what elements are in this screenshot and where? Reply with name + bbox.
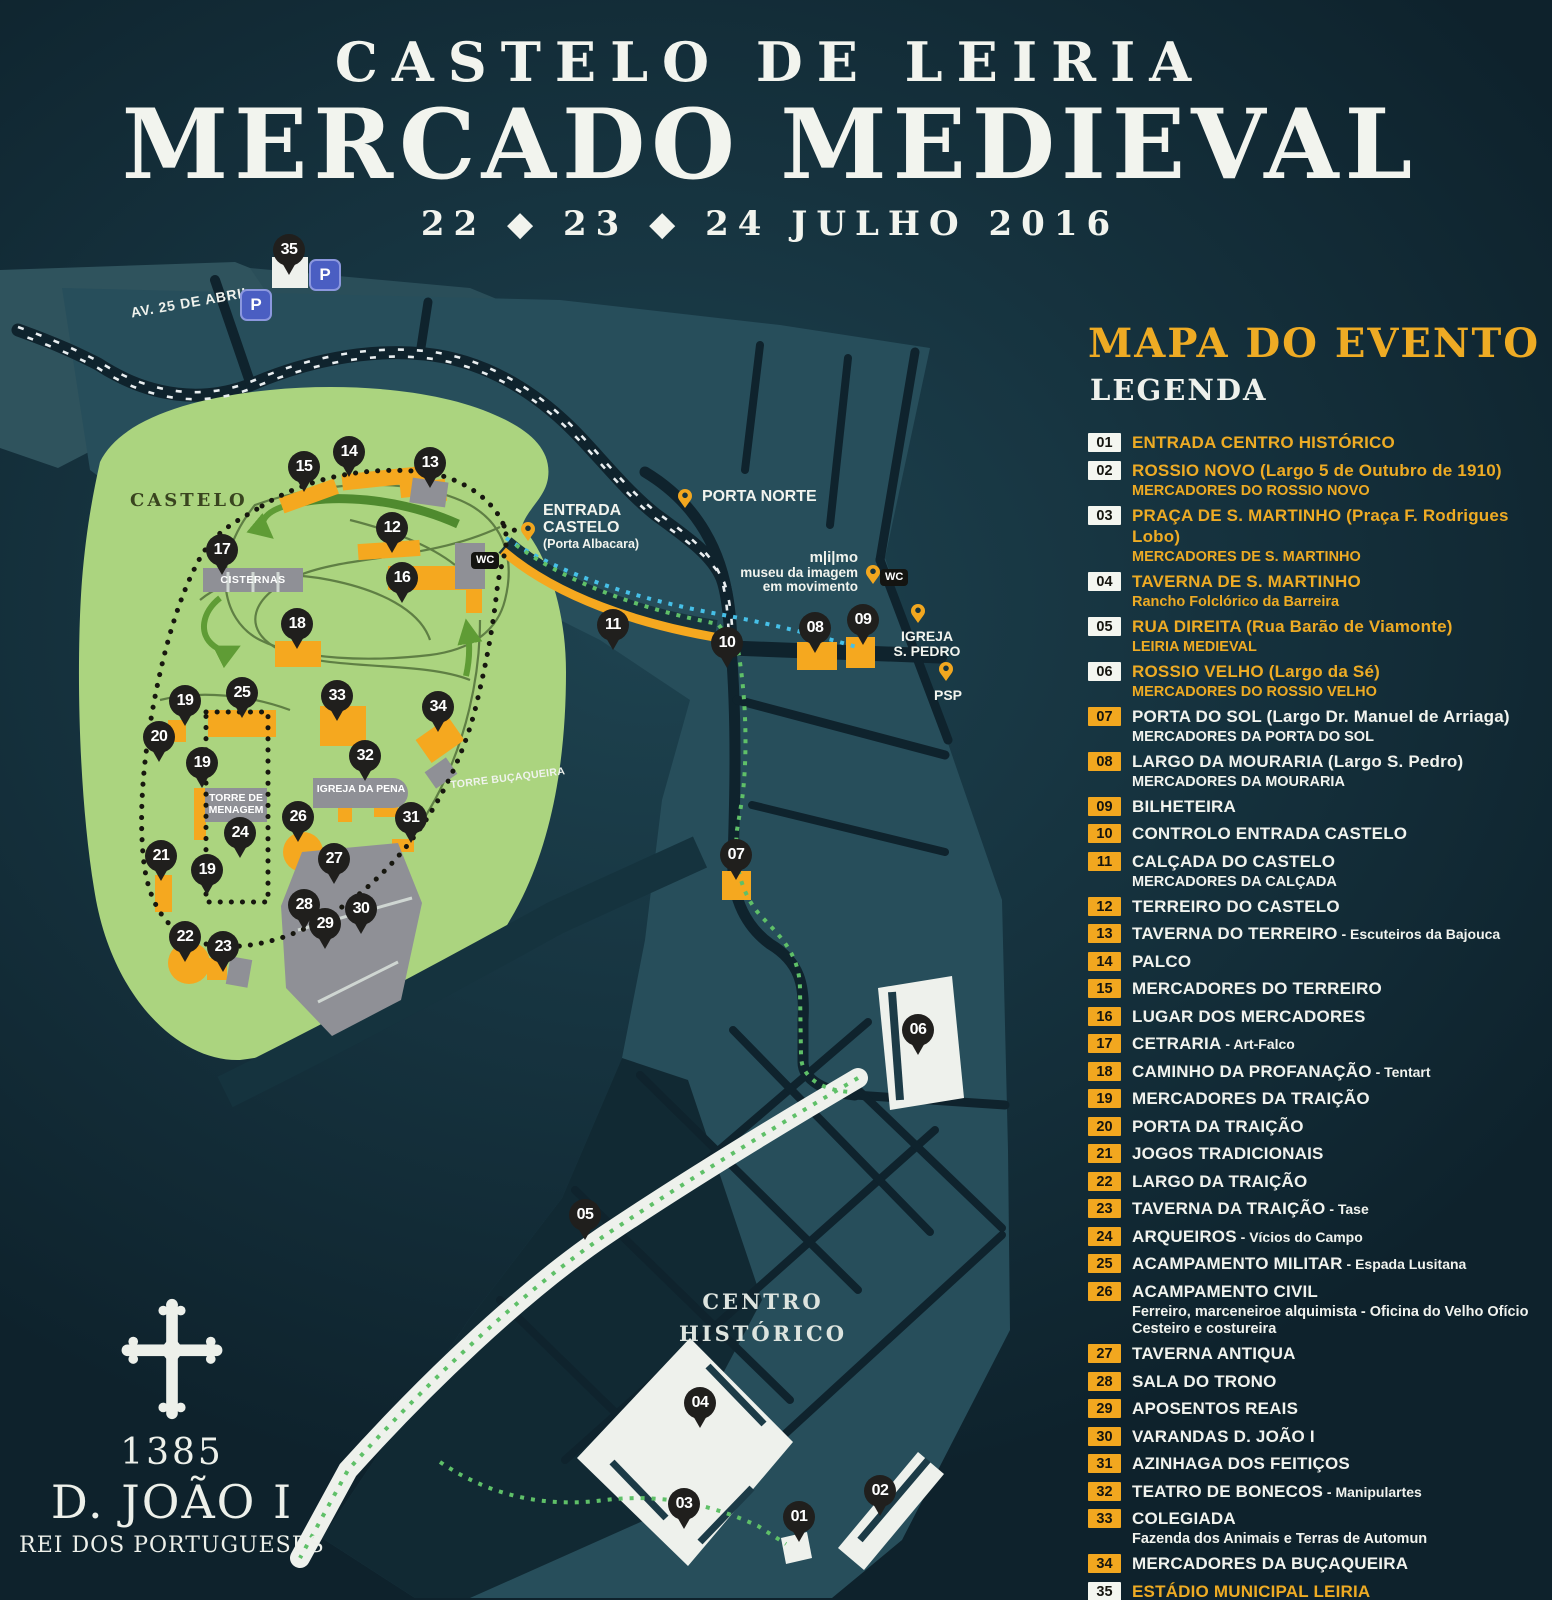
map-marker-tail [290, 828, 306, 842]
legend-item-subtitle: MERCADORES DE S. MARTINHO [1132, 549, 1546, 566]
legend-item-number: 15 [1088, 979, 1121, 998]
legend-item-17[interactable]: 17CETRARIA - Art-Falco [1088, 1034, 1546, 1055]
map-marker-25[interactable]: 25 [226, 677, 258, 718]
legend-item-subtitle: Fazenda dos Animais e Terras de Automun [1132, 1531, 1427, 1548]
legend-item-number: 20 [1088, 1117, 1121, 1136]
map-marker-16[interactable]: 16 [386, 562, 418, 603]
map-marker-tail [384, 539, 400, 553]
legend-item-text: ACAMPAMENTO CIVILFerreiro, marceneiroe a… [1132, 1282, 1528, 1338]
legend-item-title: APOSENTOS REAIS [1132, 1399, 1298, 1418]
legend-item-suffix: - Espada Lusitana [1343, 1256, 1467, 1272]
map-marker-30[interactable]: 30 [345, 893, 377, 934]
legend-item-title: ACAMPAMENTO CIVIL [1132, 1282, 1318, 1301]
legend-item-text: ACAMPAMENTO MILITAR - Espada Lusitana [1132, 1254, 1466, 1275]
legend-item-subtitle: MERCADORES DA PORTA DO SOL [1132, 729, 1510, 746]
legend-item-number: 33 [1088, 1509, 1121, 1528]
legend-item-title: MERCADORES DA TRAIÇÃO [1132, 1089, 1370, 1108]
legend-item-20[interactable]: 20PORTA DA TRAIÇÃO [1088, 1117, 1546, 1138]
entrada-castelo-pin[interactable] [521, 522, 535, 541]
crest-block: 1385 D. JOÃO I REI DOS PORTUGUESES [12, 1296, 332, 1558]
legend-item-25[interactable]: 25ACAMPAMENTO MILITAR - Espada Lusitana [1088, 1254, 1546, 1275]
map-marker-tail [151, 748, 167, 762]
map-marker-tail [341, 463, 357, 477]
legend-item-15[interactable]: 15MERCADORES DO TERREIRO [1088, 979, 1546, 1000]
legend-item-text: TAVERNA DA TRAIÇÃO - Tase [1132, 1199, 1369, 1220]
map-marker-18[interactable]: 18 [281, 608, 313, 649]
legend-item-number: 19 [1088, 1089, 1121, 1108]
map-marker-11[interactable]: 11 [597, 609, 629, 650]
legend-item-text: PORTA DA TRAIÇÃO [1132, 1117, 1304, 1138]
map-marker-tail [317, 935, 333, 949]
map-marker-tail [329, 707, 345, 721]
legend-item-number: 09 [1088, 797, 1121, 816]
legend-item-05[interactable]: 05RUA DIREITA (Rua Barão de Viamonte)LEI… [1088, 617, 1546, 656]
legend-item-text: PORTA DO SOL (Largo Dr. Manuel de Arriag… [1132, 707, 1510, 746]
map-marker-31[interactable]: 31 [395, 802, 427, 843]
map-marker-tail [281, 261, 297, 275]
parking-icon[interactable]: P [240, 289, 272, 321]
legend-item-number: 08 [1088, 752, 1121, 771]
map-marker-01[interactable]: 01 [783, 1501, 815, 1542]
legend-item-09[interactable]: 09BILHETEIRA [1088, 797, 1546, 818]
legend-item-title: ENTRADA CENTRO HISTÓRICO [1132, 433, 1395, 452]
map-marker-15[interactable]: 15 [288, 451, 320, 492]
legend-item-text: APOSENTOS REAIS [1132, 1399, 1298, 1420]
crest-year: 1385 [12, 1432, 332, 1473]
map-marker-13[interactable]: 13 [414, 447, 446, 488]
legend-item-number: 18 [1088, 1062, 1121, 1081]
legend-item-03[interactable]: 03PRAÇA DE S. MARTINHO (Praça F. Rodrigu… [1088, 506, 1546, 566]
legend-item-12[interactable]: 12TERREIRO DO CASTELO [1088, 897, 1546, 918]
poi-pin-tail [913, 616, 923, 623]
legend-item-number: 32 [1088, 1482, 1121, 1501]
legend-item-text: ROSSIO NOVO (Largo 5 de Outubro de 1910)… [1132, 461, 1502, 500]
legend-item-31[interactable]: 31AZINHAGA DOS FEITIÇOS [1088, 1454, 1546, 1475]
legend-item-11[interactable]: 11CALÇADA DO CASTELOMERCADORES DA CALÇAD… [1088, 852, 1546, 891]
poi-pin-tail [680, 501, 690, 508]
legend-item-suffix: - Tentart [1372, 1064, 1431, 1080]
legend-item-02[interactable]: 02ROSSIO NOVO (Largo 5 de Outubro de 191… [1088, 461, 1546, 500]
map-marker-tail [728, 866, 744, 880]
legend-item-text: TERREIRO DO CASTELO [1132, 897, 1340, 918]
legend-item-number: 34 [1088, 1554, 1121, 1573]
legend-item-text: CALÇADA DO CASTELOMERCADORES DA CALÇADA [1132, 852, 1337, 891]
legend-item-title: ROSSIO VELHO (Largo da Sé) [1132, 662, 1380, 681]
legend-item-number: 14 [1088, 952, 1121, 971]
legend-item-number: 25 [1088, 1254, 1121, 1273]
legend-item-subtitle: Ferreiro, marceneiroe alquimista - Ofici… [1132, 1304, 1528, 1321]
legend-item-number: 26 [1088, 1282, 1121, 1301]
map-marker-20[interactable]: 20 [143, 721, 175, 762]
map-marker-35[interactable]: 35 [273, 234, 305, 275]
legend-item-number: 06 [1088, 662, 1121, 681]
legend-item-title: CONTROLO ENTRADA CASTELO [1132, 824, 1407, 843]
legend-item-number: 28 [1088, 1372, 1121, 1391]
legend-item-text: CAMINHO DA PROFANAÇÃO - Tentart [1132, 1062, 1431, 1083]
map-marker-14[interactable]: 14 [333, 436, 365, 477]
map-marker-tail [692, 1414, 708, 1428]
legend-item-29[interactable]: 29APOSENTOS REAIS [1088, 1399, 1546, 1420]
legend-heading: MAPA DO EVENTO [1088, 320, 1546, 367]
legend-item-number: 29 [1088, 1399, 1121, 1418]
legend-item-number: 10 [1088, 824, 1121, 843]
map-marker-08[interactable]: 08 [799, 612, 831, 653]
legend-item-text: LUGAR DOS MERCADORES [1132, 1007, 1366, 1028]
legend-item-35[interactable]: 35ESTÁDIO MUNICIPAL LEIRIA [1088, 1582, 1546, 1600]
legend-item-subtitle: LEIRIA MEDIEVAL [1132, 639, 1453, 656]
map-marker-tail [177, 948, 193, 962]
map-marker-tail [855, 631, 871, 645]
legend-item-04[interactable]: 04TAVERNA DE S. MARTINHORancho Folclóric… [1088, 572, 1546, 611]
poi-pin-tail [868, 577, 878, 584]
map-marker-tail [177, 712, 193, 726]
legend-item-title: PORTA DA TRAIÇÃO [1132, 1117, 1304, 1136]
legend-item-30[interactable]: 30VARANDAS D. JOÃO I [1088, 1427, 1546, 1448]
map-marker-tail [872, 1502, 888, 1516]
map-marker-10[interactable]: 10 [711, 627, 743, 668]
crest-king-title: REI DOS PORTUGUESES [12, 1533, 332, 1558]
legend-item-22[interactable]: 22LARGO DA TRAIÇÃO [1088, 1172, 1546, 1193]
map-marker-07[interactable]: 07 [720, 839, 752, 880]
psp-pin[interactable] [939, 662, 953, 681]
legend-item-number: 30 [1088, 1427, 1121, 1446]
map-marker-24[interactable]: 24 [224, 817, 256, 858]
legend-item-title: TEATRO DE BONECOS [1132, 1482, 1323, 1501]
map-marker-tail [153, 867, 169, 881]
legend-item-suffix: - Tase [1325, 1201, 1368, 1217]
legend-item-title: TAVERNA DE S. MARTINHO [1132, 572, 1361, 591]
legend-item-number: 01 [1088, 433, 1121, 452]
legend-item-text: SALA DO TRONO [1132, 1372, 1277, 1393]
map-marker-tail [430, 718, 446, 732]
map-marker-27[interactable]: 27 [318, 843, 350, 884]
map-marker-tail [214, 561, 230, 575]
legend-item-text: ESTÁDIO MUNICIPAL LEIRIA [1132, 1582, 1370, 1600]
map-marker-02[interactable]: 02 [864, 1475, 896, 1516]
legend-item-title: PRAÇA DE S. MARTINHO (Praça F. Rodrigues… [1132, 506, 1509, 546]
legend-item-number: 35 [1088, 1582, 1121, 1600]
legend-item-text: TEATRO DE BONECOS - Manipulartes [1132, 1482, 1422, 1503]
legend-item-text: ARQUEIROS - Vícios do Campo [1132, 1227, 1363, 1248]
map-marker-tail [605, 636, 621, 650]
legend-item-24[interactable]: 24ARQUEIROS - Vícios do Campo [1088, 1227, 1546, 1248]
map-marker-33[interactable]: 33 [321, 680, 353, 721]
legend-item-07[interactable]: 07PORTA DO SOL (Largo Dr. Manuel de Arri… [1088, 707, 1546, 746]
map-marker-tail [234, 704, 250, 718]
legend-item-01[interactable]: 01ENTRADA CENTRO HISTÓRICO [1088, 433, 1546, 454]
legend-item-subtitle: MERCADORES DO ROSSIO NOVO [1132, 483, 1502, 500]
legend-items: 01ENTRADA CENTRO HISTÓRICO02ROSSIO NOVO … [1088, 433, 1546, 1600]
legend-item-text: LARGO DA MOURARIA (Largo S. Pedro)MERCAD… [1132, 752, 1463, 791]
map-marker-32[interactable]: 32 [349, 740, 381, 781]
map-marker-tail [394, 589, 410, 603]
legend-item-13[interactable]: 13TAVERNA DO TERREIRO - Escuteiros da Ba… [1088, 924, 1546, 945]
legend-item-suffix: - Escuteiros da Bajouca [1338, 926, 1501, 942]
mimo-pin[interactable] [866, 565, 880, 584]
legend-item-text: TAVERNA DO TERREIRO - Escuteiros da Bajo… [1132, 924, 1500, 945]
legend-subheading: LEGENDA [1090, 373, 1546, 407]
legend-item-text: BILHETEIRA [1132, 797, 1236, 818]
legend-item-title: ARQUEIROS [1132, 1227, 1237, 1246]
map-marker-03[interactable]: 03 [668, 1488, 700, 1529]
legend-item-number: 23 [1088, 1199, 1121, 1218]
map-marker-tail [676, 1515, 692, 1529]
map-marker-tail [791, 1528, 807, 1542]
legend-item-title: TERREIRO DO CASTELO [1132, 897, 1340, 916]
map-marker-tail [357, 767, 373, 781]
legend-item-23[interactable]: 23TAVERNA DA TRAIÇÃO - Tase [1088, 1199, 1546, 1220]
legend-panel: MAPA DO EVENTO LEGENDA 01ENTRADA CENTRO … [1088, 320, 1546, 1600]
map-marker-tail [215, 958, 231, 972]
legend-item-title: ACAMPAMENTO MILITAR [1132, 1254, 1343, 1273]
legend-item-16[interactable]: 16LUGAR DOS MERCADORES [1088, 1007, 1546, 1028]
legend-item-number: 21 [1088, 1144, 1121, 1163]
map-marker-tail [199, 881, 215, 895]
legend-item-08[interactable]: 08LARGO DA MOURARIA (Largo S. Pedro)MERC… [1088, 752, 1546, 791]
legend-item-title: MERCADORES DA BUÇAQUEIRA [1132, 1554, 1408, 1573]
legend-item-title: RUA DIREITA (Rua Barão de Viamonte) [1132, 617, 1453, 636]
legend-item-number: 02 [1088, 461, 1121, 480]
legend-item-title: CAMINHO DA PROFANAÇÃO [1132, 1062, 1372, 1081]
legend-item-10[interactable]: 10CONTROLO ENTRADA CASTELO [1088, 824, 1546, 845]
legend-item-18[interactable]: 18CAMINHO DA PROFANAÇÃO - Tentart [1088, 1062, 1546, 1083]
legend-item-32[interactable]: 32TEATRO DE BONECOS - Manipulartes [1088, 1482, 1546, 1503]
legend-item-text: RUA DIREITA (Rua Barão de Viamonte)LEIRI… [1132, 617, 1453, 656]
map-marker-22[interactable]: 22 [169, 921, 201, 962]
legend-item-subtitle: MERCADORES DA CALÇADA [1132, 874, 1337, 891]
legend-item-27[interactable]: 27TAVERNA ANTIQUA [1088, 1344, 1546, 1365]
parking-icon[interactable]: P [309, 259, 341, 291]
poi-pin-tail [941, 674, 951, 681]
legend-item-text: MERCADORES DA TRAIÇÃO [1132, 1089, 1370, 1110]
legend-item-21[interactable]: 21JOGOS TRADICIONAIS [1088, 1144, 1546, 1165]
map-marker-tail [232, 844, 248, 858]
legend-item-suffix: - Vícios do Campo [1237, 1229, 1363, 1245]
legend-item-title: PALCO [1132, 952, 1191, 971]
poi-pin-tail [523, 534, 533, 541]
legend-item-title: PORTA DO SOL (Largo Dr. Manuel de Arriag… [1132, 707, 1510, 726]
legend-item-number: 17 [1088, 1034, 1121, 1053]
legend-item-title: CETRARIA [1132, 1034, 1221, 1053]
igreja-s-pedro-pin[interactable] [911, 604, 925, 623]
legend-item-title: TAVERNA DO TERREIRO [1132, 924, 1338, 943]
map-marker-05[interactable]: 05 [569, 1199, 601, 1240]
legend-item-text: PRAÇA DE S. MARTINHO (Praça F. Rodrigues… [1132, 506, 1546, 566]
legend-item-text: PALCO [1132, 952, 1191, 973]
map-marker-tail [289, 635, 305, 649]
legend-item-number: 13 [1088, 924, 1121, 943]
legend-item-number: 11 [1088, 852, 1121, 871]
wc-badge[interactable]: WC [880, 569, 908, 586]
legend-item-subtitle: MERCADORES DA MOURARIA [1132, 774, 1463, 791]
legend-item-title: TAVERNA DA TRAIÇÃO [1132, 1199, 1325, 1218]
legend-item-number: 27 [1088, 1344, 1121, 1363]
legend-item-title: SALA DO TRONO [1132, 1372, 1277, 1391]
legend-item-subtitle: MERCADORES DO ROSSIO VELHO [1132, 684, 1380, 701]
legend-item-text: CONTROLO ENTRADA CASTELO [1132, 824, 1407, 845]
map-marker-19[interactable]: 19 [191, 854, 223, 895]
legend-item-34[interactable]: 34MERCADORES DA BUÇAQUEIRA [1088, 1554, 1546, 1575]
legend-item-title: BILHETEIRA [1132, 797, 1236, 816]
legend-item-title: LARGO DA MOURARIA (Largo S. Pedro) [1132, 752, 1463, 771]
legend-item-number: 04 [1088, 572, 1121, 591]
legend-item-text: ROSSIO VELHO (Largo da Sé)MERCADORES DO … [1132, 662, 1380, 701]
legend-item-number: 03 [1088, 506, 1121, 525]
map-marker-tail [807, 639, 823, 653]
map-marker-tail [577, 1226, 593, 1240]
legend-item-title: ESTÁDIO MUNICIPAL LEIRIA [1132, 1582, 1370, 1600]
legend-item-title: MERCADORES DO TERREIRO [1132, 979, 1382, 998]
map-marker-29[interactable]: 29 [309, 908, 341, 949]
legend-item-title: AZINHAGA DOS FEITIÇOS [1132, 1454, 1350, 1473]
map-marker-tail [719, 654, 735, 668]
legend-item-text: AZINHAGA DOS FEITIÇOS [1132, 1454, 1350, 1475]
map-marker-tail [326, 870, 342, 884]
map-marker-12[interactable]: 12 [376, 512, 408, 553]
legend-item-number: 05 [1088, 617, 1121, 636]
legend-item-number: 24 [1088, 1227, 1121, 1246]
cross-icon [113, 1296, 231, 1422]
legend-item-subtitle: Rancho Folclórico da Barreira [1132, 594, 1361, 611]
map-marker-tail [422, 474, 438, 488]
legend-item-text: JOGOS TRADICIONAIS [1132, 1144, 1324, 1165]
legend-item-number: 07 [1088, 707, 1121, 726]
legend-item-28[interactable]: 28SALA DO TRONO [1088, 1372, 1546, 1393]
legend-item-subtitle: Cesteiro e costureira [1132, 1321, 1528, 1338]
map-marker-tail [910, 1041, 926, 1055]
legend-item-text: CETRARIA - Art-Falco [1132, 1034, 1295, 1055]
legend-item-text: ENTRADA CENTRO HISTÓRICO [1132, 433, 1395, 454]
legend-item-text: TAVERNA DE S. MARTINHORancho Folclórico … [1132, 572, 1361, 611]
legend-item-06[interactable]: 06ROSSIO VELHO (Largo da Sé)MERCADORES D… [1088, 662, 1546, 701]
map-marker-19[interactable]: 19 [169, 685, 201, 726]
map-marker-21[interactable]: 21 [145, 840, 177, 881]
wc-badge[interactable]: WC [471, 552, 499, 569]
map-marker-tail [403, 829, 419, 843]
legend-item-text: TAVERNA ANTIQUA [1132, 1344, 1296, 1365]
legend-item-suffix: - Manipulartes [1323, 1484, 1422, 1500]
map-marker-23[interactable]: 23 [207, 931, 239, 972]
legend-item-number: 12 [1088, 897, 1121, 916]
legend-item-number: 31 [1088, 1454, 1121, 1473]
legend-item-title: TAVERNA ANTIQUA [1132, 1344, 1296, 1363]
legend-item-title: CALÇADA DO CASTELO [1132, 852, 1335, 871]
map-marker-tail [296, 478, 312, 492]
legend-item-text: VARANDAS D. JOÃO I [1132, 1427, 1315, 1448]
crest-king-name: D. JOÃO I [12, 1475, 332, 1529]
legend-item-title: COLEGIADA [1132, 1509, 1236, 1528]
legend-item-title: JOGOS TRADICIONAIS [1132, 1144, 1324, 1163]
legend-item-number: 22 [1088, 1172, 1121, 1191]
map-marker-06[interactable]: 06 [902, 1014, 934, 1055]
legend-item-14[interactable]: 14PALCO [1088, 952, 1546, 973]
legend-item-suffix: - Art-Falco [1221, 1036, 1294, 1052]
map-marker-19[interactable]: 19 [186, 747, 218, 788]
legend-item-text: COLEGIADAFazenda dos Animais e Terras de… [1132, 1509, 1427, 1548]
map-marker-17[interactable]: 17 [206, 534, 238, 575]
legend-item-text: MERCADORES DO TERREIRO [1132, 979, 1382, 1000]
map-marker-34[interactable]: 34 [422, 691, 454, 732]
map-marker-tail [194, 774, 210, 788]
map-marker-04[interactable]: 04 [684, 1387, 716, 1428]
legend-item-title: LUGAR DOS MERCADORES [1132, 1007, 1366, 1026]
map-marker-tail [353, 920, 369, 934]
legend-item-26[interactable]: 26ACAMPAMENTO CIVILFerreiro, marceneiroe… [1088, 1282, 1546, 1338]
legend-item-text: LARGO DA TRAIÇÃO [1132, 1172, 1307, 1193]
legend-item-title: LARGO DA TRAIÇÃO [1132, 1172, 1307, 1191]
porta-norte-pin[interactable] [678, 489, 692, 508]
legend-item-number: 16 [1088, 1007, 1121, 1026]
legend-item-title: ROSSIO NOVO (Largo 5 de Outubro de 1910) [1132, 461, 1502, 480]
legend-item-text: MERCADORES DA BUÇAQUEIRA [1132, 1554, 1408, 1575]
map-marker-09[interactable]: 09 [847, 604, 879, 645]
legend-item-19[interactable]: 19MERCADORES DA TRAIÇÃO [1088, 1089, 1546, 1110]
legend-item-33[interactable]: 33COLEGIADAFazenda dos Animais e Terras … [1088, 1509, 1546, 1548]
legend-item-title: VARANDAS D. JOÃO I [1132, 1427, 1315, 1446]
poster: CASTELO DE LEIRIA MERCADO MEDIEVAL 22 ◆ … [0, 0, 1552, 1600]
map-marker-26[interactable]: 26 [282, 801, 314, 842]
